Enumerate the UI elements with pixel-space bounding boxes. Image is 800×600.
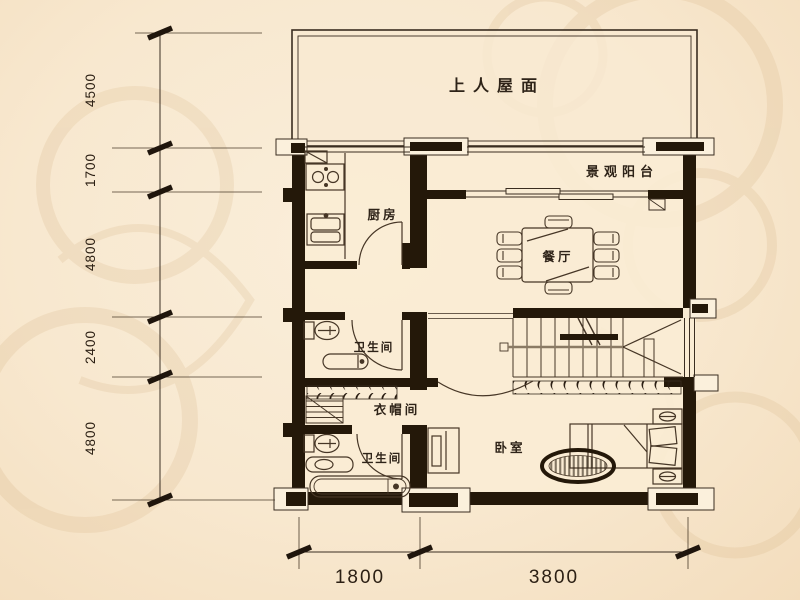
dim-bottom-1800: 1800 — [335, 567, 385, 588]
dim-bottom-3800: 3800 — [529, 567, 579, 588]
floor-plan-canvas: 上人屋面 景观阳台 厨房 餐厅 卫生间 衣帽间 卫生间 卧室 4500 — [0, 0, 800, 600]
dining-label: 餐厅 — [541, 249, 573, 264]
dim-left-4800a: 4800 — [83, 237, 98, 271]
bedroom-label: 卧室 — [494, 440, 525, 455]
hanger-rail-left — [307, 386, 397, 399]
bathroom-upper-label: 卫生间 — [354, 340, 395, 354]
dim-left-4500: 4500 — [83, 73, 98, 107]
stair-handrail — [560, 334, 618, 340]
bathroom-lower-label: 卫生间 — [362, 451, 403, 465]
floor-plan-drawing: 上人屋面 景观阳台 厨房 餐厅 卫生间 衣帽间 卫生间 卧室 4500 — [0, 0, 800, 600]
kitchen-label: 厨房 — [367, 207, 398, 222]
dim-left-4800b: 4800 — [83, 421, 98, 455]
dim-left-2400: 2400 — [83, 330, 98, 364]
cloakroom-label: 衣帽间 — [374, 402, 421, 417]
dim-left-1700: 1700 — [83, 153, 98, 187]
roof-terrace-label: 上人屋面 — [449, 77, 545, 95]
balcony-label: 景观阳台 — [586, 164, 658, 179]
hanger-rail-right — [513, 381, 681, 394]
bottom-dimension-chain: 1800 3800 — [287, 517, 700, 588]
